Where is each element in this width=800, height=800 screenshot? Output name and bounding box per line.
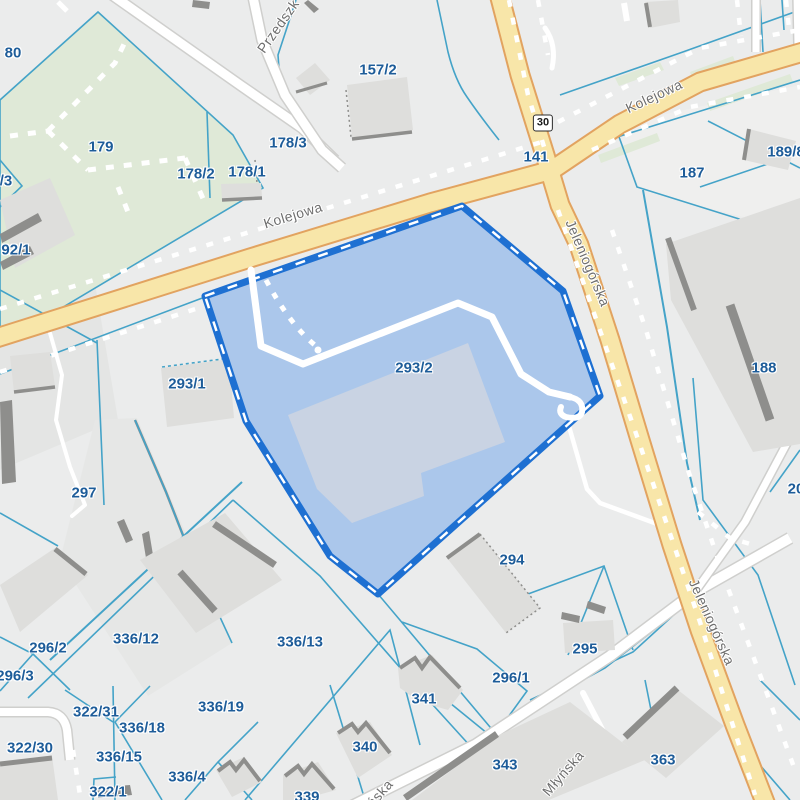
road-number-badge: 30 [533,115,553,132]
map-canvas[interactable]: 80179178/2178/1178/3157/2141187189/8/392… [0,0,800,800]
map-artwork [0,0,800,800]
